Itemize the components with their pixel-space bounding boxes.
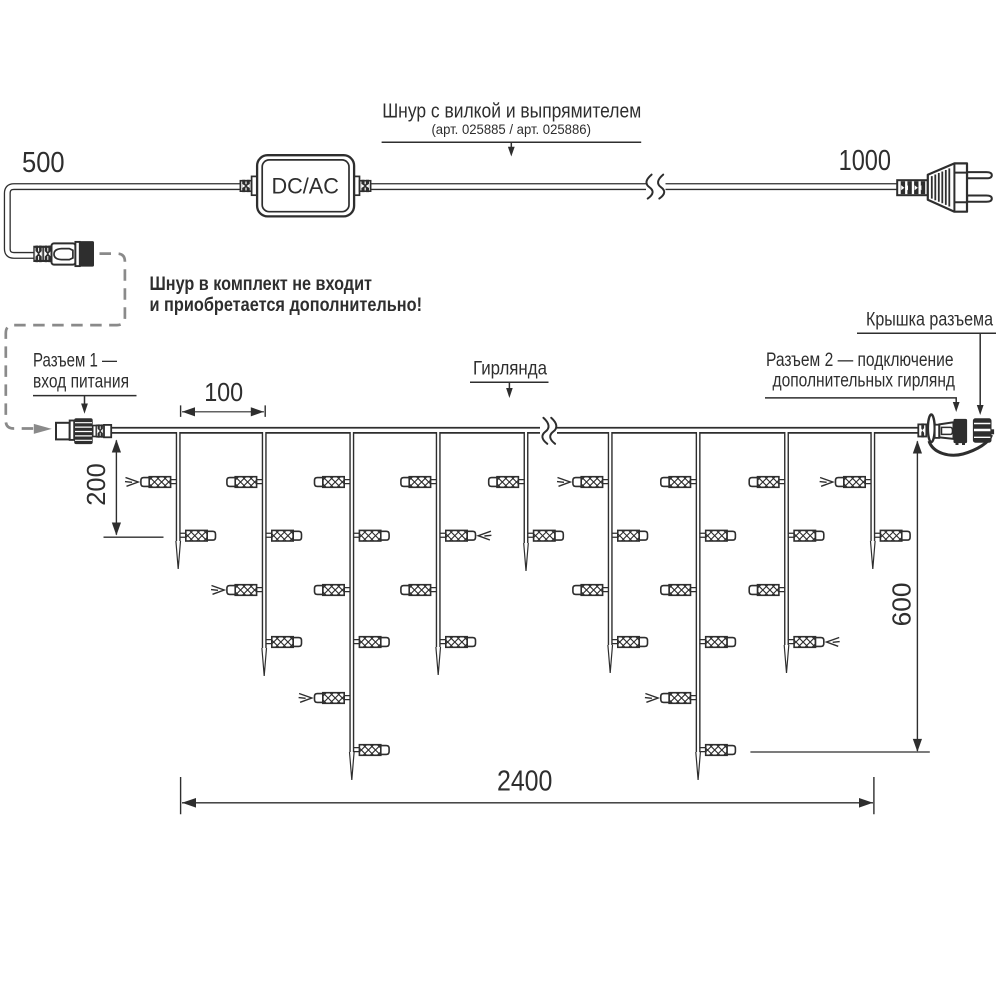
svg-text:600: 600: [887, 582, 917, 626]
svg-text:200: 200: [81, 463, 111, 506]
svg-text:Крышка разъема: Крышка разъема: [866, 308, 993, 330]
svg-text:500: 500: [22, 147, 65, 179]
svg-text:2400: 2400: [497, 766, 553, 798]
svg-text:100: 100: [204, 377, 243, 407]
svg-text:Шнур с вилкой и выпрямителем: Шнур с вилкой и выпрямителем: [382, 99, 641, 122]
svg-text:1000: 1000: [839, 145, 891, 177]
svg-text:Разъем 1 —: Разъем 1 —: [33, 349, 117, 371]
svg-text:DC/AC: DC/AC: [271, 173, 339, 198]
svg-text:дополнительных гирлянд: дополнительных гирлянд: [773, 370, 956, 392]
svg-text:вход питания: вход питания: [33, 370, 129, 392]
svg-text:Гирлянда: Гирлянда: [473, 357, 547, 379]
svg-text:(арт. 025885 / арт. 025886): (арт. 025885 / арт. 025886): [431, 122, 591, 138]
svg-text:и приобретается дополнительно!: и приобретается дополнительно!: [150, 295, 423, 316]
svg-text:Шнур в комплект не входит: Шнур в комплект не входит: [150, 274, 373, 295]
svg-text:Разъем 2 — подключение: Разъем 2 — подключение: [766, 349, 954, 371]
